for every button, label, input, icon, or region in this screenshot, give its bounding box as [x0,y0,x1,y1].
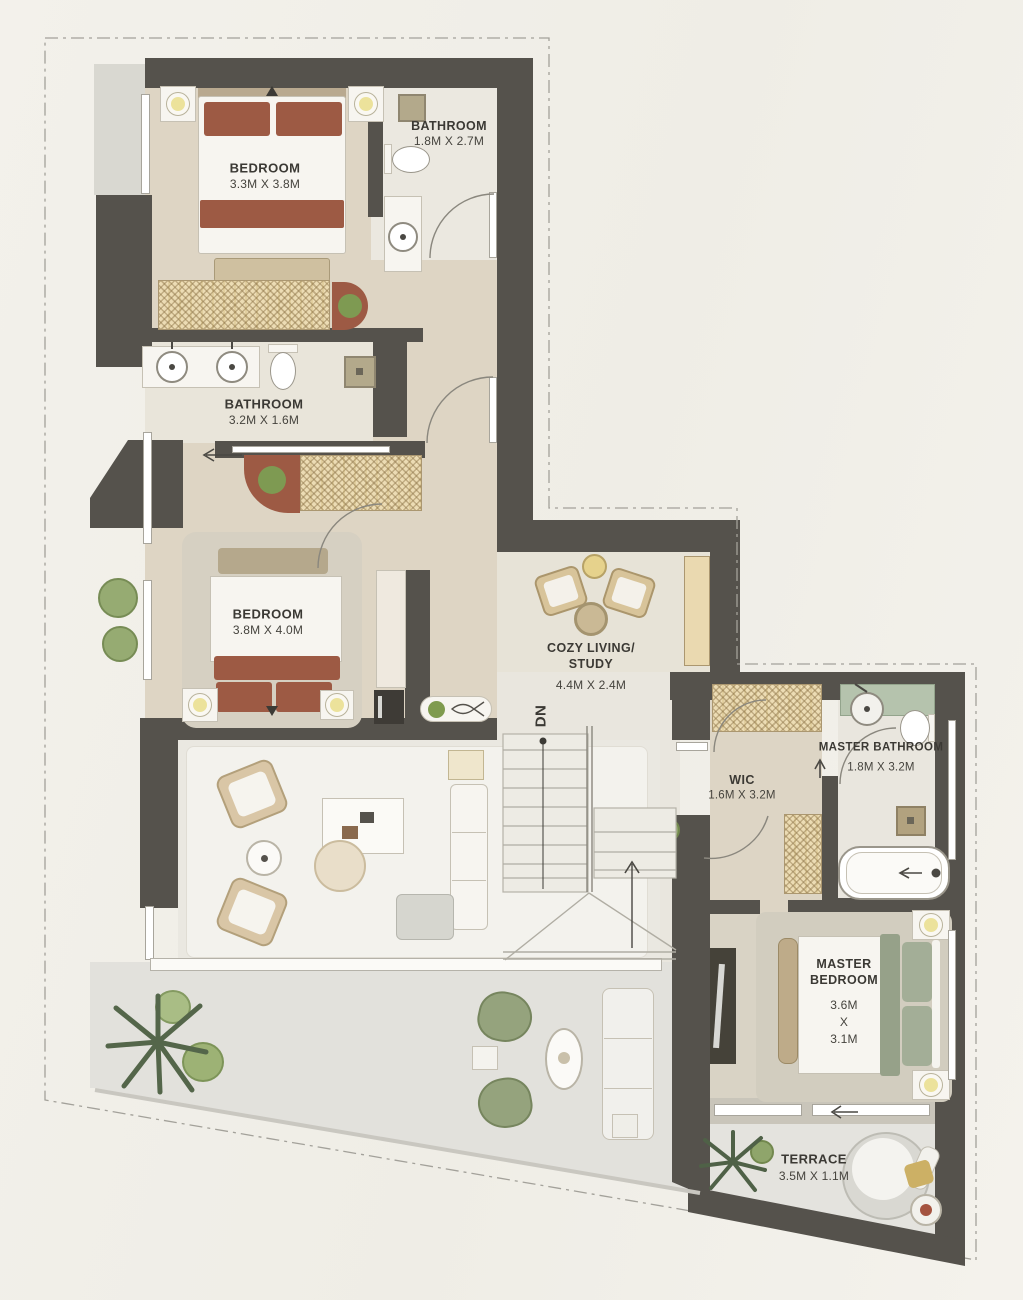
sink-drain [864,706,870,712]
master-bedroom-dims: 3.6M X 3.1M [830,997,857,1047]
window-hall-left [143,432,152,544]
sink-drain [400,234,406,240]
window-bedroom1-left [141,94,150,194]
bush-icon [98,578,138,618]
terrace-name: TERRACE [781,1152,847,1169]
wic-name: WIC [729,772,755,788]
window-terrace-a [714,1104,802,1116]
door-leaf-hall [489,377,497,443]
bush-icon [750,1140,774,1164]
wardrobe-icon [784,814,822,894]
bush-icon [656,818,680,842]
wall-living-left [140,718,178,908]
lamp-icon [355,93,377,115]
wall-wic-mbath [822,776,838,898]
decor-ball [428,701,445,718]
door-leaf-bathroom1 [489,192,497,258]
pillow [276,102,342,136]
bathtub-inner [846,852,942,894]
bush-icon [155,990,191,1024]
lamp-icon [189,694,211,716]
bathroom-1-name: BATHROOM [411,118,487,134]
toilet-icon [392,146,430,173]
sofa-cushion-line [452,880,486,881]
bush-icon [182,1042,224,1082]
window-terrace-b [812,1104,930,1116]
bedroom-1-name: BEDROOM [230,161,301,178]
cozy-living-name: COZY LIVING/ STUDY [547,640,635,673]
side-table-dot [261,855,268,862]
wardrobe-icon [158,280,330,330]
master-bedroom-name: MASTER BEDROOM [810,956,878,989]
bed-runner [200,200,344,228]
door-leaf-wic [676,742,708,751]
round-table-icon [582,554,607,579]
wardrobe-icon [300,455,422,511]
bookshelf-icon [684,556,710,666]
wall-right-upper [497,58,533,536]
cozy-living-dims: 4.4M X 2.4M [556,678,626,694]
wall-cozy-right [710,552,740,672]
bedroom-2-name: BEDROOM [233,607,304,624]
window-bedroom2-left [143,580,152,680]
plant-icon [258,466,286,494]
lamp-icon [326,694,348,716]
sink-drain [169,364,175,370]
wall-cozy-top [497,520,740,552]
square-table-icon [472,1046,498,1070]
wall-top [145,58,533,88]
stairs-down-label: DN [531,705,551,727]
pouf-icon [314,840,366,892]
wall-master-left-b [672,815,710,1215]
floor-plan: BEDROOM 3.3M X 3.8M BATHROOM 1.8M X 2.7M… [0,0,1023,1300]
lamp-icon [920,1074,942,1096]
bed-runner [880,934,900,1076]
shower-drain [356,368,363,375]
shower-drain [907,817,914,824]
bathroom-2-name: BATHROOM [225,397,304,414]
wall-mbed-top-a [710,900,760,914]
wardrobe-tall [376,570,406,688]
laptop-icon [360,812,374,823]
tray-dot [558,1052,570,1064]
sink-drain [229,364,235,370]
wall-left-chunk [96,195,152,367]
bed-bench [778,938,798,1064]
plant-icon [338,294,362,318]
chaise-icon [396,894,454,940]
window-master-right-a [948,720,956,860]
terrace-dims: 3.5M X 1.1M [779,1169,849,1185]
bedroom-2-dims: 3.8M X 4.0M [233,623,303,639]
bathroom-1-dims: 1.8M X 2.7M [414,134,484,150]
bed-edge [932,940,940,1068]
master-bathroom-name: MASTER BATHROOM [819,741,944,756]
sofa-cushion-line [604,1088,652,1089]
window-living-left [145,906,154,960]
toilet-icon [270,352,296,390]
tv-screen [378,696,382,718]
square-table-icon [612,1114,638,1138]
bush-icon [102,626,138,662]
pillow [216,682,272,712]
headboard-cushion [218,548,328,574]
bed-bench [214,258,330,282]
sofa-side-table [448,750,484,780]
window-living-bottom [150,958,662,971]
pillow [902,942,932,1002]
bed-runner [214,656,340,680]
exterior-ledge [94,64,145,195]
master-bathroom-dims: 1.8M X 3.2M [847,761,914,776]
wall-left-diagonal [90,440,183,528]
lamp-icon [920,914,942,936]
window-master-right-b [948,930,956,1080]
bedroom-1-dims: 3.3M X 3.8M [230,177,300,193]
tray-icon [342,826,358,839]
bathroom-2-dims: 3.2M X 1.6M [229,413,299,429]
sliding-door-bath2 [232,446,390,453]
lamp-icon [167,93,189,115]
wic-dims: 1.6M X 3.2M [708,789,775,804]
toilet-icon [384,144,392,174]
sofa-icon [450,784,488,930]
tray-dot-red [920,1204,932,1216]
wall-shower-side [373,330,407,437]
round-table-icon [574,602,608,636]
wall-master-left-a [672,700,710,740]
sofa-cushion-line [452,832,486,833]
pillow [902,1006,932,1066]
sofa-cushion-line [604,1038,652,1039]
wardrobe-icon [712,684,822,732]
pillow [204,102,270,136]
